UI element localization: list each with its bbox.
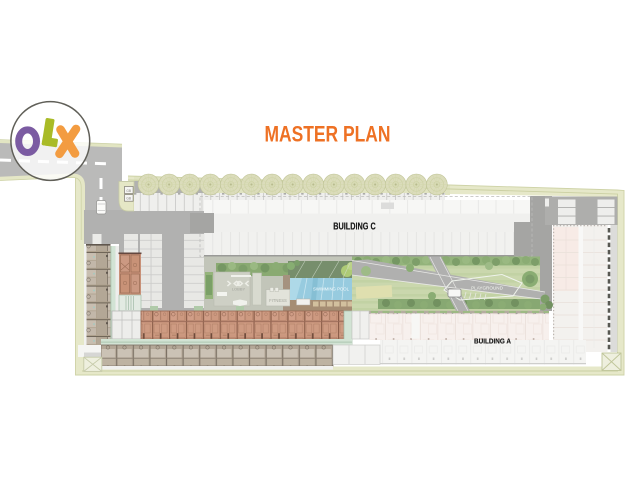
svg-text:MASTER PLAN: MASTER PLAN (265, 122, 391, 147)
svg-text:BUILDING C: BUILDING C (333, 222, 376, 233)
svg-text:BUILDING A: BUILDING A (474, 337, 511, 346)
